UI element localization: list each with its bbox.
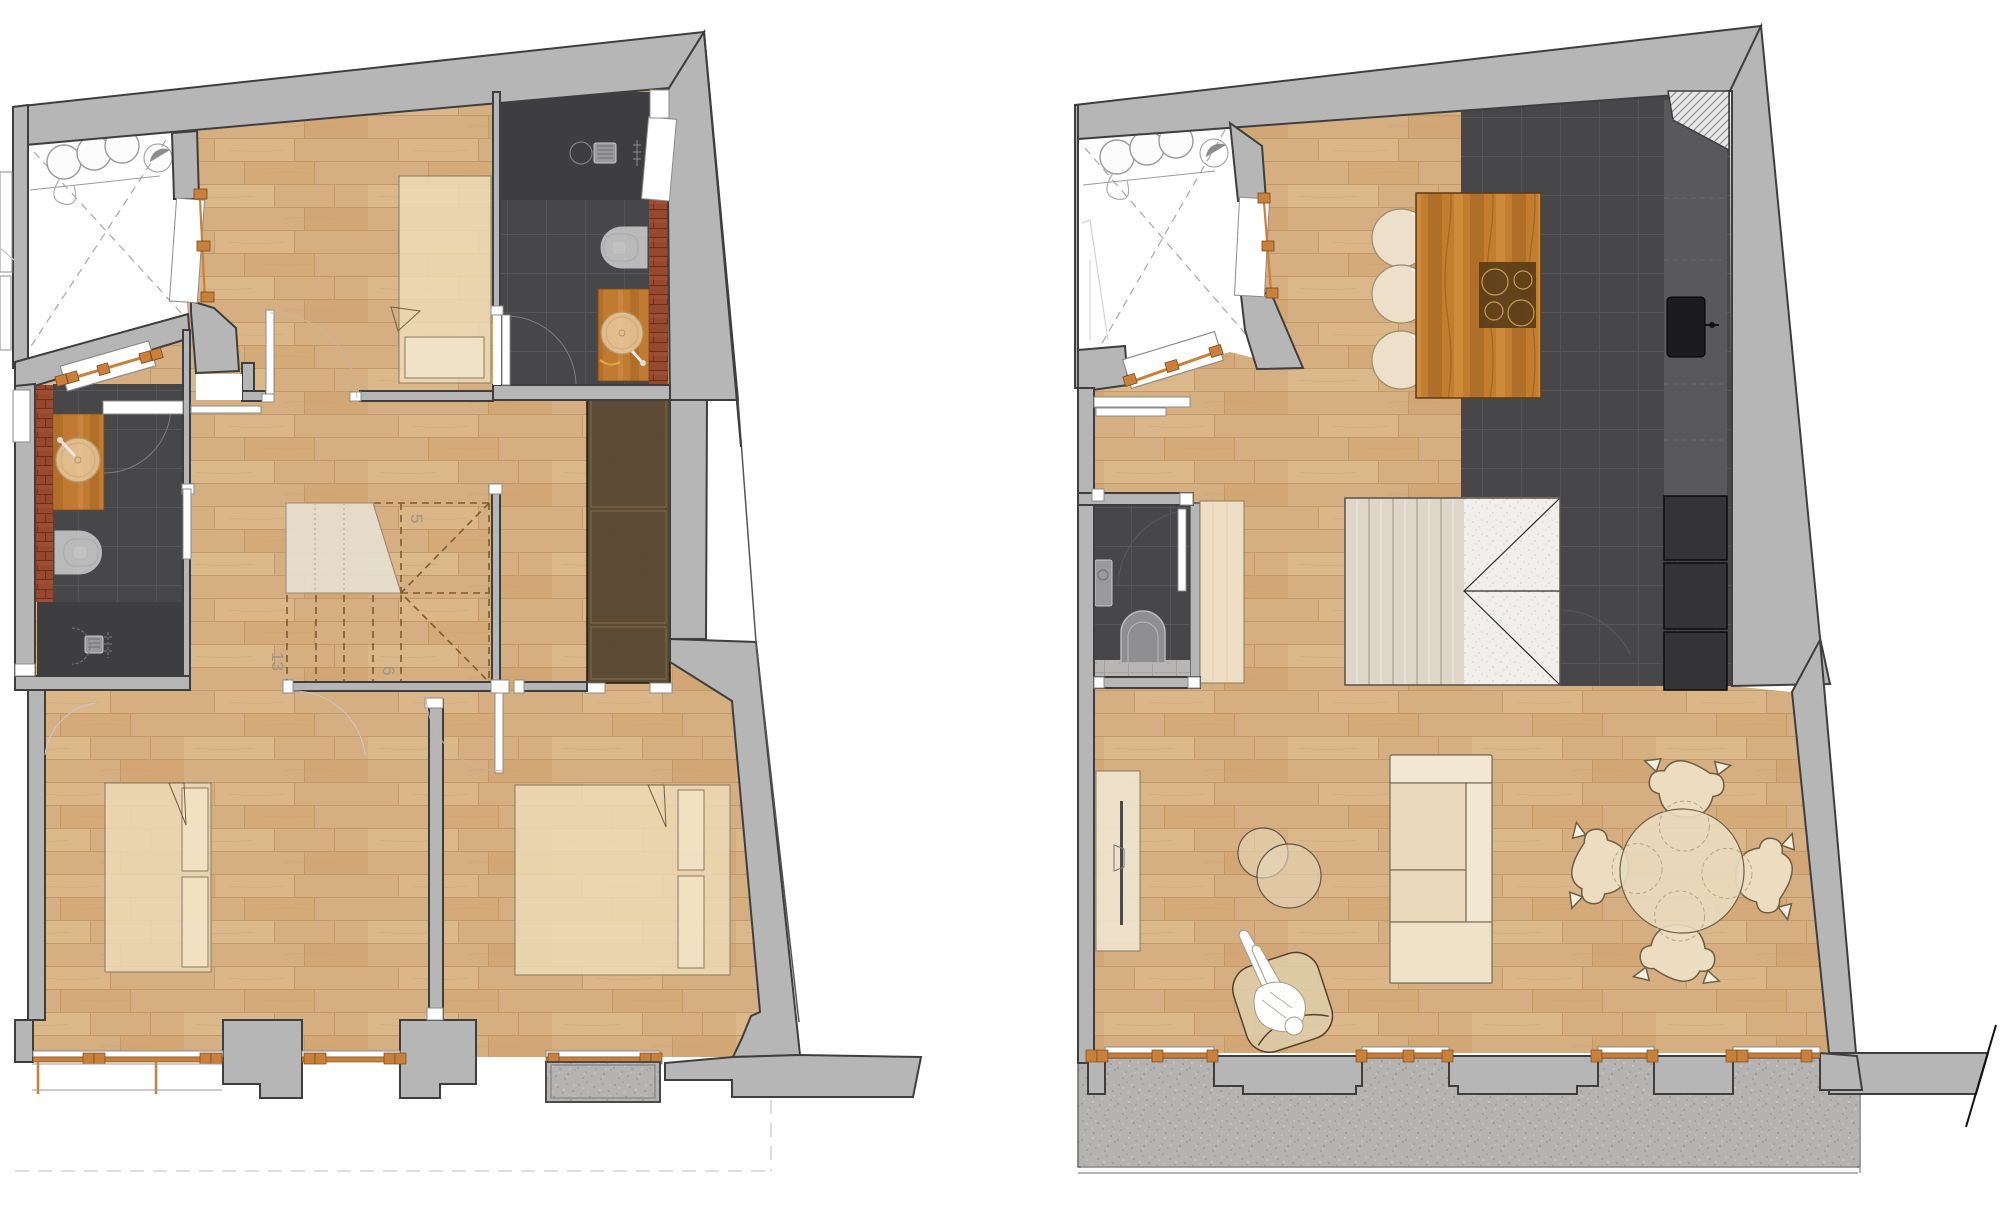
svg-text:13: 13 (268, 652, 287, 671)
svg-text:5: 5 (407, 514, 426, 523)
svg-text:6: 6 (379, 666, 398, 675)
